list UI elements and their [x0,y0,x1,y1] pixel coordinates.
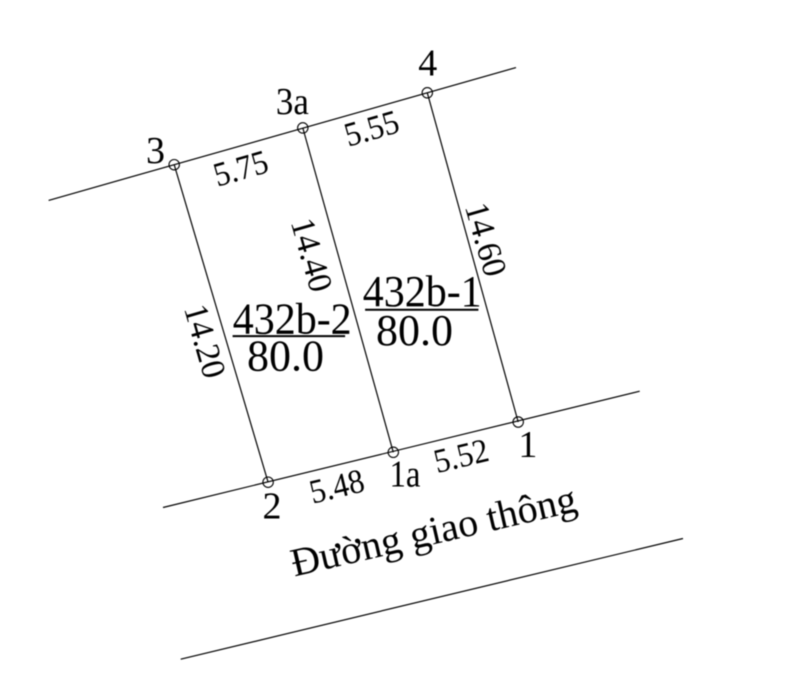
svg-text:3: 3 [146,130,165,172]
svg-text:1a: 1a [390,454,421,496]
svg-text:3a: 3a [276,81,309,123]
svg-text:80.0: 80.0 [247,332,324,381]
svg-text:1: 1 [518,424,537,466]
svg-text:2: 2 [263,486,282,528]
svg-text:80.0: 80.0 [376,306,453,355]
svg-text:4: 4 [418,43,437,85]
